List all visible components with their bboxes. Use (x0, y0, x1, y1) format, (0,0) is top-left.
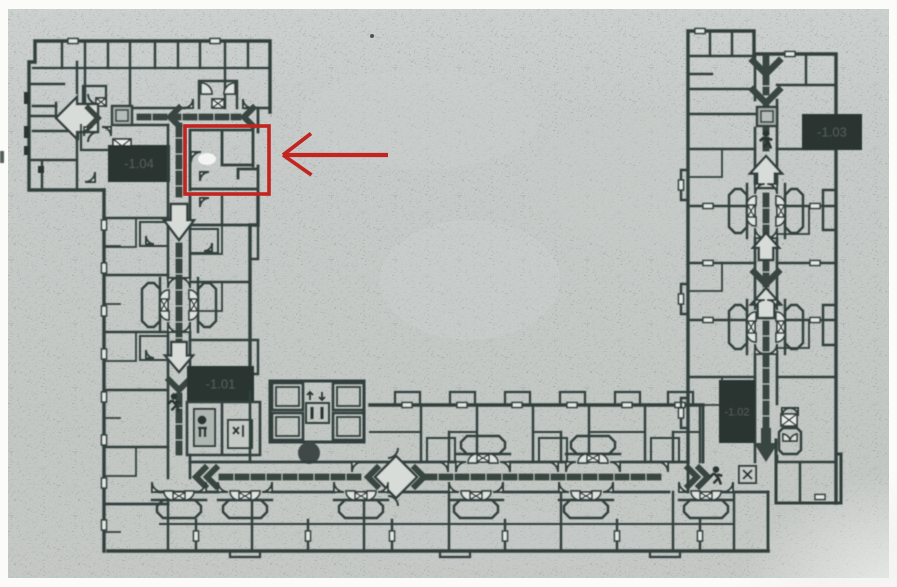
svg-text:-1.03: -1.03 (817, 125, 847, 140)
svg-text:-1.04: -1.04 (124, 156, 154, 171)
svg-text:-1.02: -1.02 (724, 406, 749, 418)
svg-text:-1.01: -1.01 (206, 377, 236, 392)
